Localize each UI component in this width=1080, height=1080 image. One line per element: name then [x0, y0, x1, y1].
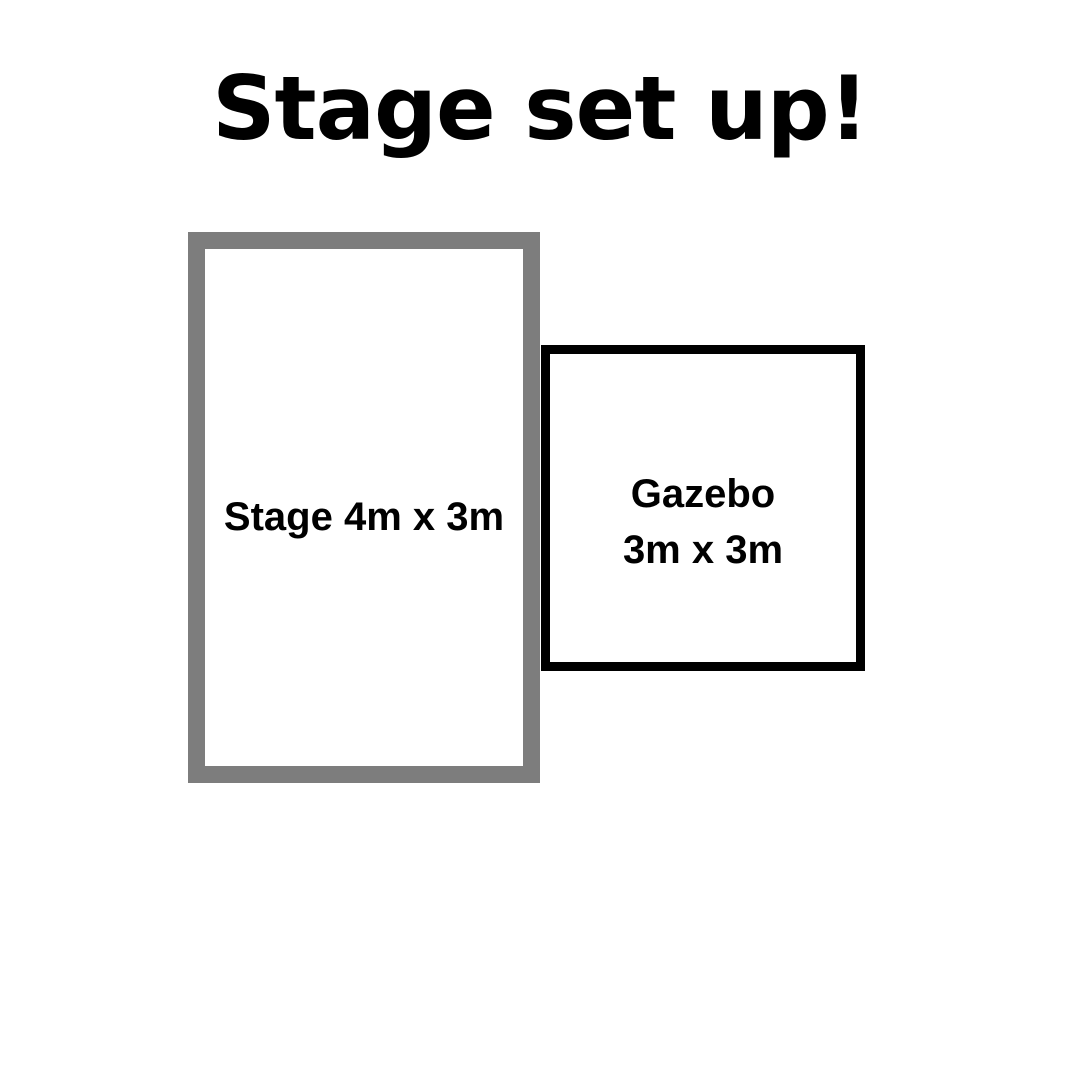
page-title: Stage set up!	[0, 56, 1080, 162]
gazebo-rectangle: Gazebo 3m x 3m	[541, 345, 865, 671]
stage-rectangle: Stage 4m x 3m	[188, 232, 540, 783]
design-canvas: Stage set up! Stage 4m x 3m Gazebo 3m x …	[0, 0, 1080, 1080]
gazebo-label-line1: Gazebo	[623, 466, 783, 522]
stage-label: Stage 4m x 3m	[224, 489, 504, 545]
gazebo-label-line2: 3m x 3m	[623, 522, 783, 578]
gazebo-label: Gazebo 3m x 3m	[623, 466, 783, 578]
